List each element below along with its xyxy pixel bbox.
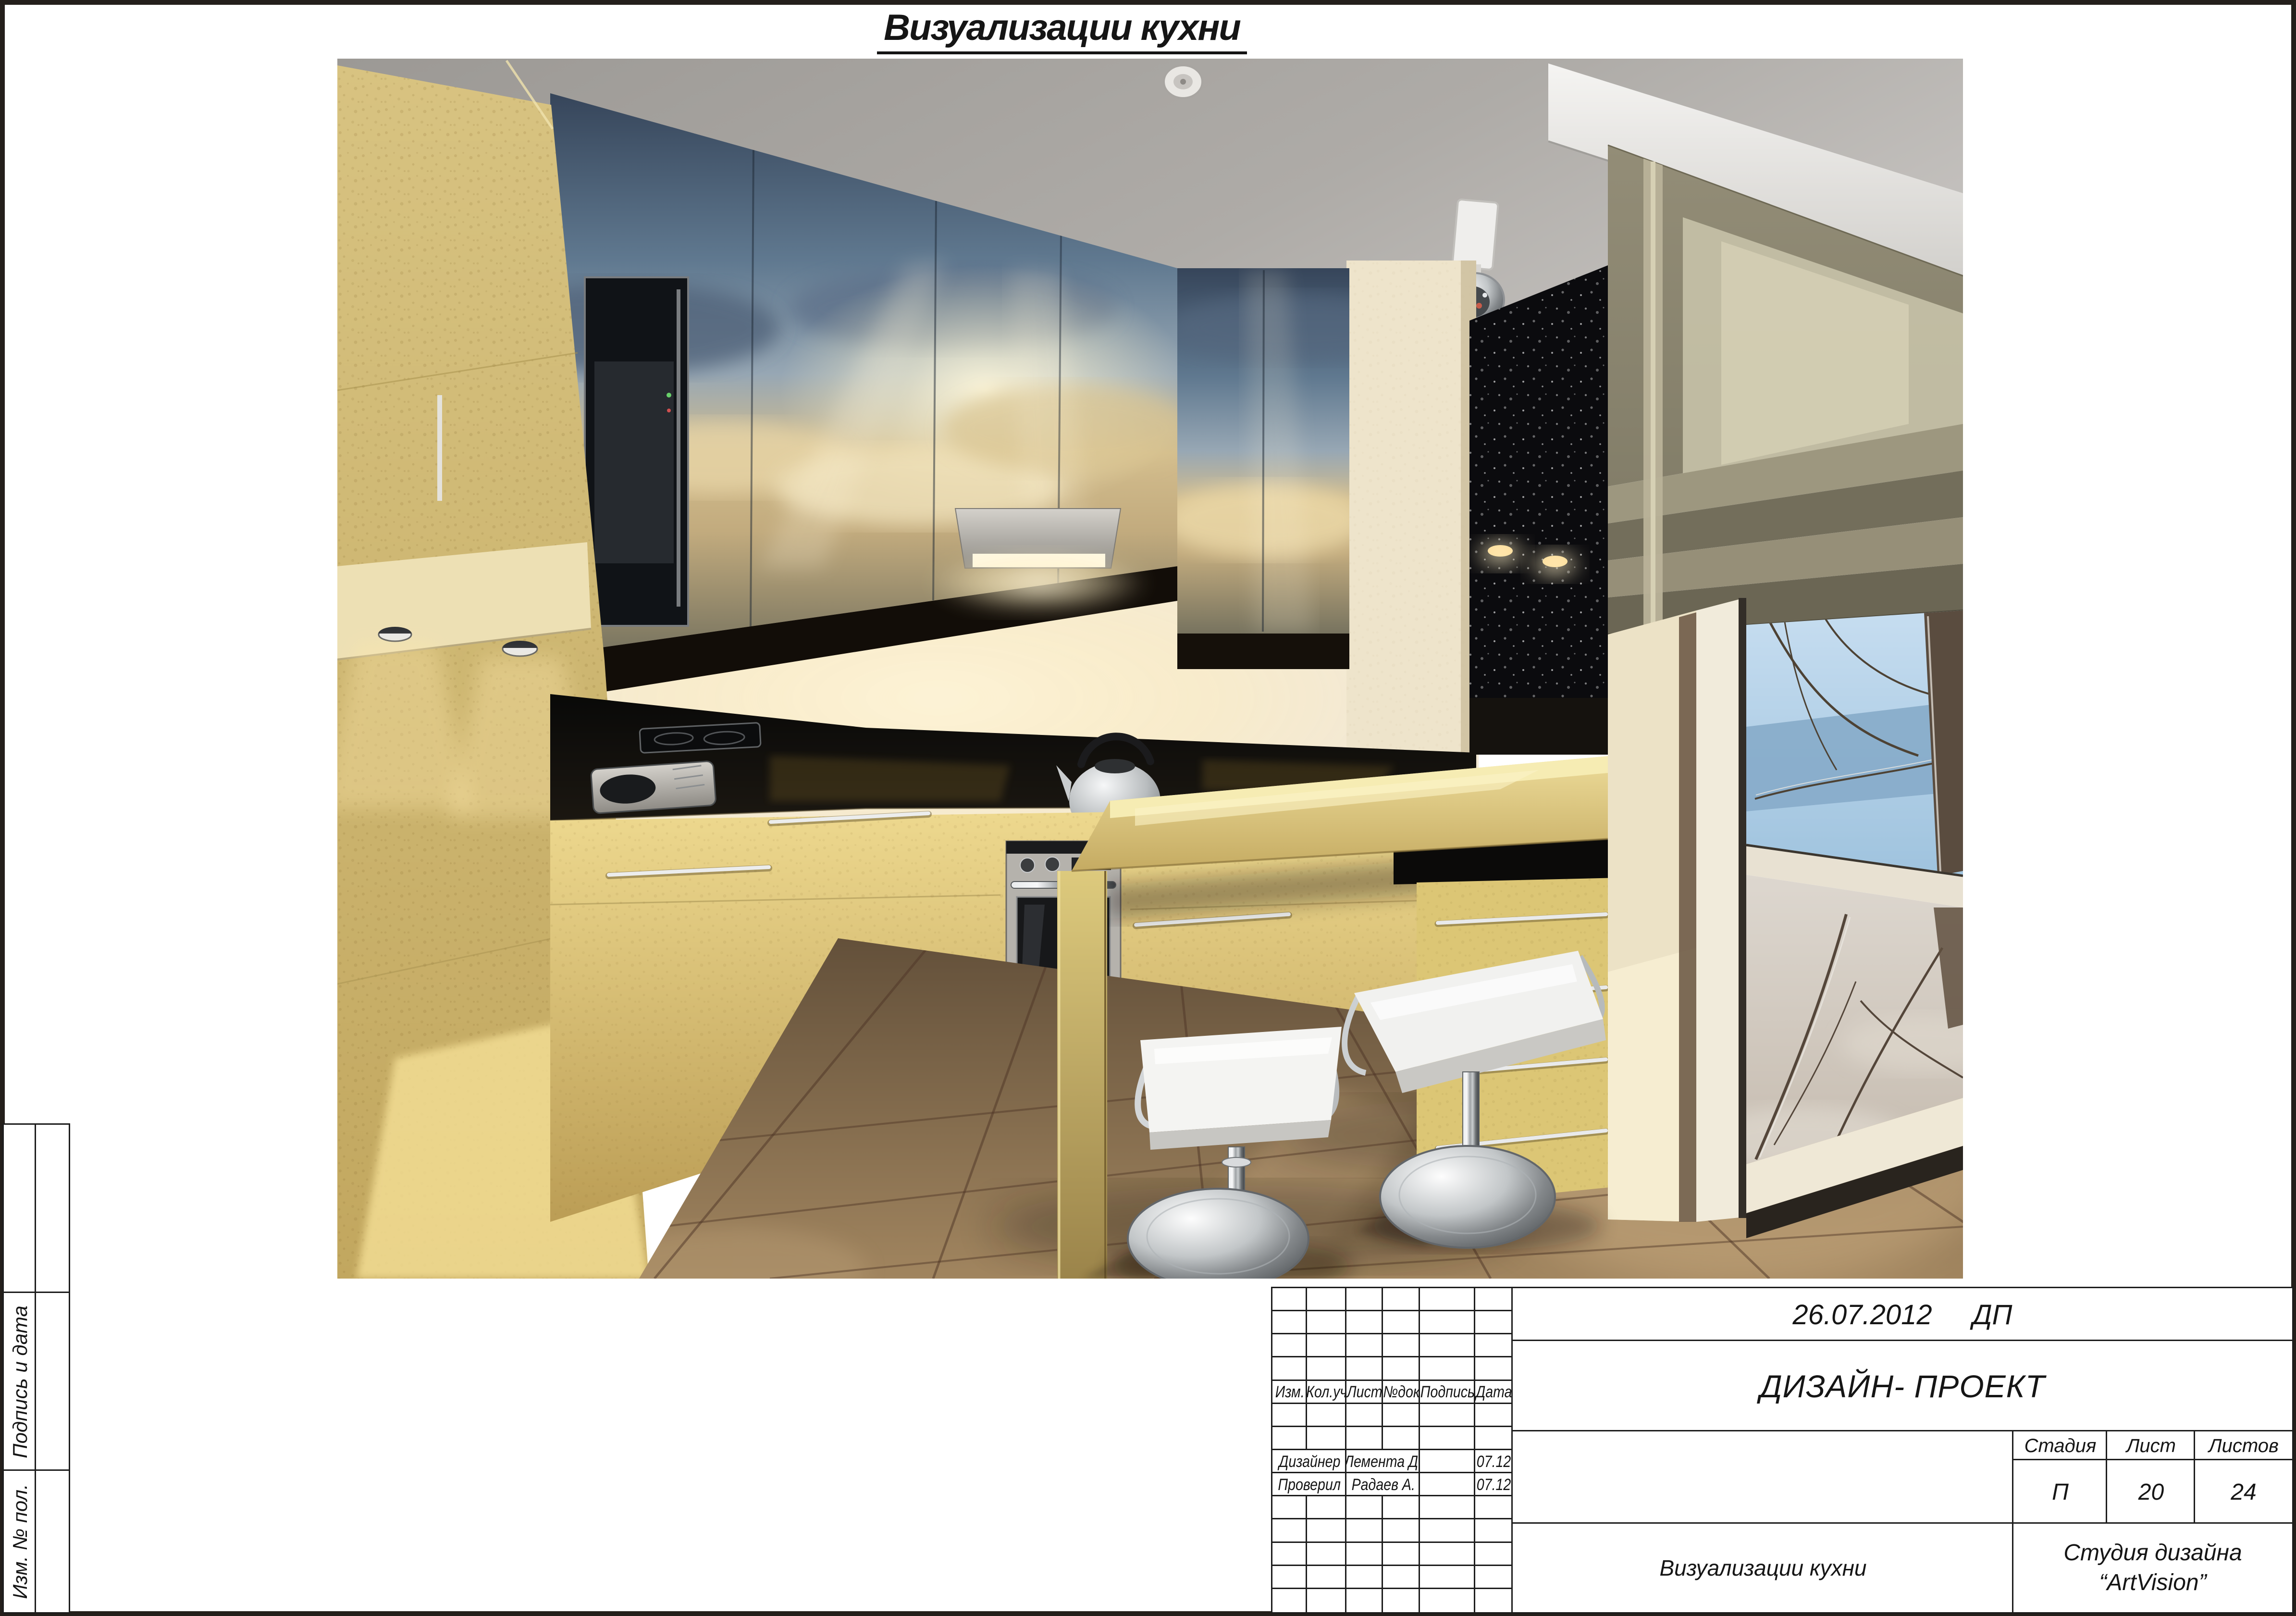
titleblock-grid-cell-empty bbox=[1475, 1519, 1513, 1542]
titleblock-grid-cell-text: Подпись bbox=[1420, 1383, 1475, 1402]
titleblock-grid-cell-empty bbox=[1475, 1357, 1513, 1380]
titleblock-grid-cell-empty bbox=[1272, 1543, 1307, 1566]
titleblock-grid-cell-empty bbox=[1420, 1334, 1475, 1357]
titleblock-grid-cell-empty bbox=[1307, 1543, 1346, 1566]
stage-value: 20 bbox=[2138, 1479, 2164, 1505]
range-hood bbox=[928, 509, 1149, 614]
titleblock-grid-cell-empty bbox=[1346, 1566, 1383, 1589]
stage-value-list: 20 bbox=[2107, 1460, 2195, 1524]
titleblock-grid-cell: Лист bbox=[1346, 1381, 1383, 1404]
titleblock-grid-cell-empty bbox=[1420, 1589, 1475, 1612]
titleblock-grid-cell: Дата bbox=[1475, 1381, 1513, 1404]
titleblock-grid-cell-text: Лемента Д. bbox=[1346, 1453, 1420, 1471]
titleblock-grid-cell-text: Дизайнер bbox=[1279, 1453, 1340, 1471]
titleblock-grid-cell-empty bbox=[1383, 1543, 1420, 1566]
titleblock-grid-cell-empty bbox=[1307, 1589, 1346, 1612]
titleblock-grid-cell-empty bbox=[1420, 1404, 1475, 1427]
titleblock-grid-cell-empty bbox=[1346, 1357, 1383, 1380]
stage-header-label: Лист bbox=[2126, 1435, 2176, 1457]
titleblock-grid-cell-empty bbox=[1475, 1288, 1513, 1311]
titleblock-grid-cell-empty bbox=[1307, 1519, 1346, 1542]
titleblock-grid-cell-empty bbox=[1307, 1404, 1346, 1427]
title-block: Изм.Кол.учЛист№докПодписьДатаДизайнерЛем… bbox=[1272, 1288, 2292, 1612]
titleblock-grid-cell-empty bbox=[1475, 1543, 1513, 1566]
titleblock-project: ДИЗАЙН- ПРОЕКТ bbox=[1760, 1368, 2045, 1405]
titleblock-grid-cell-text: Лист bbox=[1347, 1383, 1383, 1402]
titleblock-grid-cell-empty bbox=[1307, 1334, 1346, 1357]
titleblock-grid-cell-empty bbox=[1272, 1404, 1307, 1427]
titleblock-grid-cell-empty bbox=[1420, 1450, 1475, 1473]
titleblock-grid-cell-text: Изм. bbox=[1275, 1383, 1305, 1402]
titleblock-grid-cell: 07.12 bbox=[1475, 1473, 1513, 1496]
titleblock-grid-cell: Радаев А. bbox=[1346, 1473, 1420, 1496]
stage-header-label: Листов bbox=[2209, 1435, 2279, 1457]
titleblock-grid-cell: Подпись bbox=[1420, 1381, 1475, 1404]
stage-header-label: Стадия bbox=[2024, 1435, 2097, 1457]
margin-cell-inventory: Изм. № пол. bbox=[4, 1471, 36, 1612]
margin-cell-empty bbox=[4, 1125, 36, 1293]
titleblock-empty-cell bbox=[1513, 1431, 2013, 1524]
titleblock-grid-cell-text: Дата bbox=[1476, 1383, 1512, 1402]
titleblock-grid-cell-empty bbox=[1346, 1404, 1383, 1427]
titleblock-grid-cell-empty bbox=[1383, 1566, 1420, 1589]
titleblock-grid-cell-empty bbox=[1475, 1311, 1513, 1334]
titleblock-grid-cell-empty bbox=[1475, 1566, 1513, 1589]
titleblock-grid-cell-empty bbox=[1307, 1427, 1346, 1450]
titleblock-grid-cell-empty bbox=[1383, 1404, 1420, 1427]
stage-header-stadiya: Стадия bbox=[2013, 1431, 2107, 1460]
titleblock-grid-cell-empty bbox=[1475, 1404, 1513, 1427]
studio-name-line2: “ArtVision” bbox=[2099, 1568, 2206, 1598]
titleblock-grid-cell-empty bbox=[1420, 1496, 1475, 1519]
stage-value: 24 bbox=[2231, 1479, 2256, 1505]
margin-cell-empty bbox=[36, 1293, 69, 1471]
stage-value-listov: 24 bbox=[2195, 1460, 2292, 1524]
titleblock-grid-cell-empty bbox=[1307, 1566, 1346, 1589]
titleblock-grid-cell-empty bbox=[1272, 1566, 1307, 1589]
titleblock-grid-cell-empty bbox=[1272, 1311, 1307, 1334]
titleblock-grid-cell: №док bbox=[1383, 1381, 1420, 1404]
titleblock-stage-code: ДП bbox=[1973, 1299, 2012, 1331]
kitchen-render-svg bbox=[337, 59, 1963, 1279]
kitchen-sink bbox=[591, 761, 716, 814]
titleblock-sheet-title: Визуализации кухни bbox=[1659, 1555, 1866, 1581]
titleblock-grid-cell-empty bbox=[1420, 1566, 1475, 1589]
margin-label-inventory: Изм. № пол. bbox=[9, 1484, 32, 1599]
stage-value: П bbox=[2052, 1479, 2069, 1505]
titleblock-grid-cell-empty bbox=[1420, 1427, 1475, 1450]
titleblock-grid-cell: 07.12 bbox=[1475, 1450, 1513, 1473]
titleblock-grid-cell-text: 07.12 bbox=[1477, 1453, 1511, 1471]
titleblock-grid-cell-empty bbox=[1272, 1357, 1307, 1380]
titleblock-grid-cell-empty bbox=[1475, 1427, 1513, 1450]
titleblock-grid-cell-empty bbox=[1383, 1496, 1420, 1519]
margin-cell-empty bbox=[36, 1125, 69, 1293]
titleblock-grid-cell-empty bbox=[1420, 1288, 1475, 1311]
titleblock-grid-cell-empty bbox=[1383, 1311, 1420, 1334]
margin-cell-empty bbox=[36, 1471, 69, 1612]
stage-value-stadiya: П bbox=[2013, 1460, 2107, 1524]
titleblock-grid-cell-text: №док bbox=[1383, 1383, 1420, 1402]
built-in-microwave bbox=[585, 277, 688, 626]
titleblock-grid-cell-empty bbox=[1346, 1543, 1383, 1566]
titleblock-grid-cell-empty bbox=[1272, 1288, 1307, 1311]
stage-header-listov: Листов bbox=[2195, 1431, 2292, 1460]
stage-header-list: Лист bbox=[2107, 1431, 2195, 1460]
titleblock-grid-cell-empty bbox=[1346, 1311, 1383, 1334]
titleblock-grid-cell-empty bbox=[1420, 1473, 1475, 1496]
margin-label-signature-date: Подпись и дата bbox=[9, 1305, 32, 1458]
window-frame-and-glass bbox=[1608, 598, 1963, 1238]
titleblock-grid-cell-empty bbox=[1383, 1589, 1420, 1612]
titleblock-grid-cell-empty bbox=[1346, 1519, 1383, 1542]
kitchen-render-image bbox=[337, 59, 1963, 1279]
margin-cell-signature-date: Подпись и дата bbox=[4, 1293, 36, 1471]
page-title: Визуализации кухни bbox=[846, 7, 1278, 54]
titleblock-grid-cell-empty bbox=[1307, 1496, 1346, 1519]
titleblock-grid-cell-text: Радаев А. bbox=[1351, 1476, 1415, 1494]
titleblock-grid-cell-empty bbox=[1420, 1357, 1475, 1380]
titleblock-grid-cell-empty bbox=[1307, 1311, 1346, 1334]
titleblock-grid-cell-empty bbox=[1475, 1334, 1513, 1357]
titleblock-grid-cell-empty bbox=[1346, 1427, 1383, 1450]
drawing-sheet: Визуализации кухни bbox=[0, 0, 2296, 1616]
titleblock-grid-cell-empty bbox=[1383, 1334, 1420, 1357]
titleblock-grid-cell-empty bbox=[1272, 1427, 1307, 1450]
titleblock-grid-cell: Дизайнер bbox=[1272, 1450, 1346, 1473]
titleblock-grid-cell-empty bbox=[1272, 1519, 1307, 1542]
page-title-text: Визуализации кухни bbox=[877, 7, 1247, 54]
titleblock-grid-cell-empty bbox=[1383, 1288, 1420, 1311]
titleblock-date: 26.07.2012 bbox=[1792, 1299, 1932, 1331]
titleblock-grid-cell: Изм. bbox=[1272, 1381, 1307, 1404]
titleblock-grid-cell-text: 07.12 bbox=[1477, 1476, 1511, 1494]
ceiling-round-light bbox=[1164, 65, 1202, 98]
titleblock-grid-cell: Кол.уч bbox=[1307, 1381, 1346, 1404]
titleblock-grid-cell: Проверил bbox=[1272, 1473, 1346, 1496]
titleblock-grid-cell: Лемента Д. bbox=[1346, 1450, 1420, 1473]
studio-name-line1: Студия дизайна bbox=[2063, 1538, 2242, 1568]
titleblock-grid-cell-empty bbox=[1272, 1589, 1307, 1612]
titleblock-left-grid: Изм.Кол.учЛист№докПодписьДатаДизайнерЛем… bbox=[1272, 1288, 1513, 1612]
titleblock-grid-cell-empty bbox=[1272, 1496, 1307, 1519]
titleblock-grid-cell-empty bbox=[1346, 1334, 1383, 1357]
titleblock-grid-cell-empty bbox=[1383, 1519, 1420, 1542]
titleblock-grid-cell-empty bbox=[1272, 1334, 1307, 1357]
titleblock-grid-cell-empty bbox=[1346, 1589, 1383, 1612]
titleblock-project-cell: ДИЗАЙН- ПРОЕКТ bbox=[1513, 1341, 2292, 1431]
titleblock-grid-cell-empty bbox=[1383, 1427, 1420, 1450]
titleblock-grid-cell-text: Кол.уч bbox=[1307, 1383, 1346, 1402]
titleblock-grid-cell-empty bbox=[1383, 1357, 1420, 1380]
titleblock-grid-cell-empty bbox=[1307, 1288, 1346, 1311]
titleblock-date-cell: 26.07.2012 ДП bbox=[1513, 1288, 2292, 1341]
titleblock-grid-cell-empty bbox=[1475, 1589, 1513, 1612]
titleblock-grid-cell-empty bbox=[1420, 1543, 1475, 1566]
titleblock-grid-cell-empty bbox=[1346, 1288, 1383, 1311]
titleblock-grid-cell-empty bbox=[1307, 1357, 1346, 1380]
titleblock-grid-cell-empty bbox=[1420, 1311, 1475, 1334]
titleblock-grid-cell-empty bbox=[1420, 1519, 1475, 1542]
titleblock-grid-cell-empty bbox=[1346, 1496, 1383, 1519]
titleblock-studio-cell: Студия дизайна “ArtVision” bbox=[2013, 1524, 2292, 1612]
titleblock-grid-cell-empty bbox=[1475, 1496, 1513, 1519]
titleblock-grid-cell-text: Проверил bbox=[1278, 1476, 1341, 1494]
titleblock-sheet-title-cell: Визуализации кухни bbox=[1513, 1524, 2013, 1612]
